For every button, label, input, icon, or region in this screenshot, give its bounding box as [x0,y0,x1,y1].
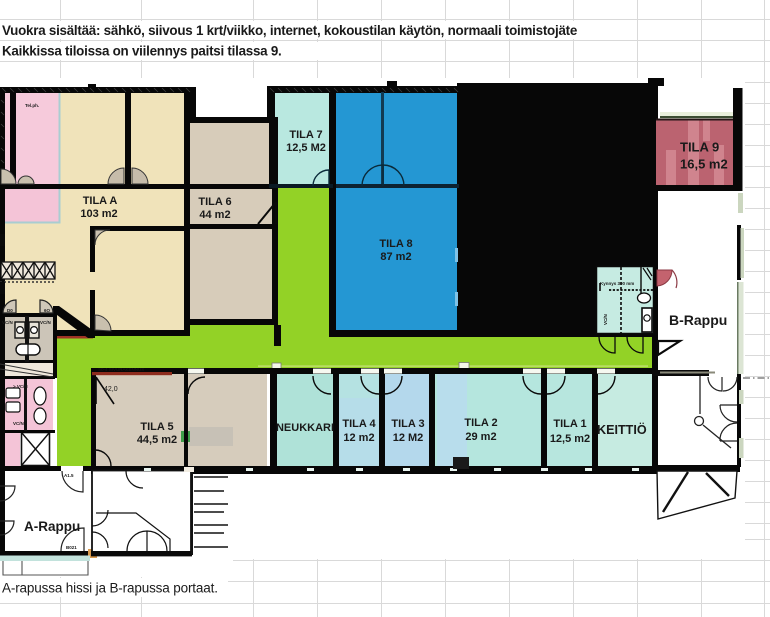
svg-text:TILA A: TILA A [83,195,118,207]
svg-text:TILA 9: TILA 9 [680,140,719,155]
svg-text:VC/N: VC/N [2,320,13,325]
svg-text:TILA 1: TILA 1 [553,418,586,430]
svg-text:VC/N: VC/N [40,320,51,325]
svg-text:TILA 4: TILA 4 [342,418,376,430]
svg-text:B021: B021 [66,545,77,550]
svg-text:B-Rappu: B-Rappu [669,312,727,328]
svg-text:29 m2: 29 m2 [465,431,496,443]
svg-text:KEITTIÖ: KEITTIÖ [597,422,647,437]
svg-text:87 m2: 87 m2 [380,251,411,263]
svg-text:A-rapussa hissi ja B-rapussa p: A-rapussa hissi ja B-rapussa portaat. [2,581,218,596]
svg-text:TILA 5: TILA 5 [140,421,173,433]
svg-text:TILA 8: TILA 8 [379,238,412,250]
svg-text:103 m2: 103 m2 [80,208,117,220]
svg-text:42,0: 42,0 [104,386,118,393]
svg-text:6O: 6O [44,308,51,313]
svg-text:TILA 6: TILA 6 [198,196,231,208]
svg-text:Tel.ph.: Tel.ph. [25,103,39,108]
svg-text:12 m2: 12 m2 [343,432,374,444]
svg-text:TILA 7: TILA 7 [289,129,322,141]
svg-text:> VC/N: > VC/N [13,384,28,389]
svg-text:A1.5: A1.5 [64,473,74,478]
svg-text:VC/N: VC/N [13,421,24,426]
svg-text:TILA 3: TILA 3 [391,418,424,430]
svg-text:12 M2: 12 M2 [393,432,424,444]
svg-text:VC/N: VC/N [603,314,608,325]
svg-text:NEUKKARI: NEUKKARI [276,422,334,434]
svg-text:Kynnys 300 mm: Kynnys 300 mm [600,281,634,286]
svg-text:Vuokra sisältää: sähkö, siivou: Vuokra sisältää: sähkö, siivous 1 krt/vi… [2,23,577,38]
svg-text:12,5 M2: 12,5 M2 [286,142,326,154]
svg-text:44 m2: 44 m2 [199,209,230,221]
svg-text:S0-4 SIVURAKENNUS: S0-4 SIVURAKENNUS [98,367,144,372]
svg-text:16,5 m2: 16,5 m2 [680,157,728,172]
svg-text:12,5 m2: 12,5 m2 [550,433,590,445]
svg-text:TILA 2: TILA 2 [464,417,497,429]
svg-text:Kaikkissa tiloissa on viilenny: Kaikkissa tiloissa on viilennys paitsi t… [2,44,282,59]
svg-text:D0: D0 [7,308,13,313]
svg-text:44,5 m2: 44,5 m2 [137,434,177,446]
svg-text:A-Rappu: A-Rappu [24,519,80,534]
